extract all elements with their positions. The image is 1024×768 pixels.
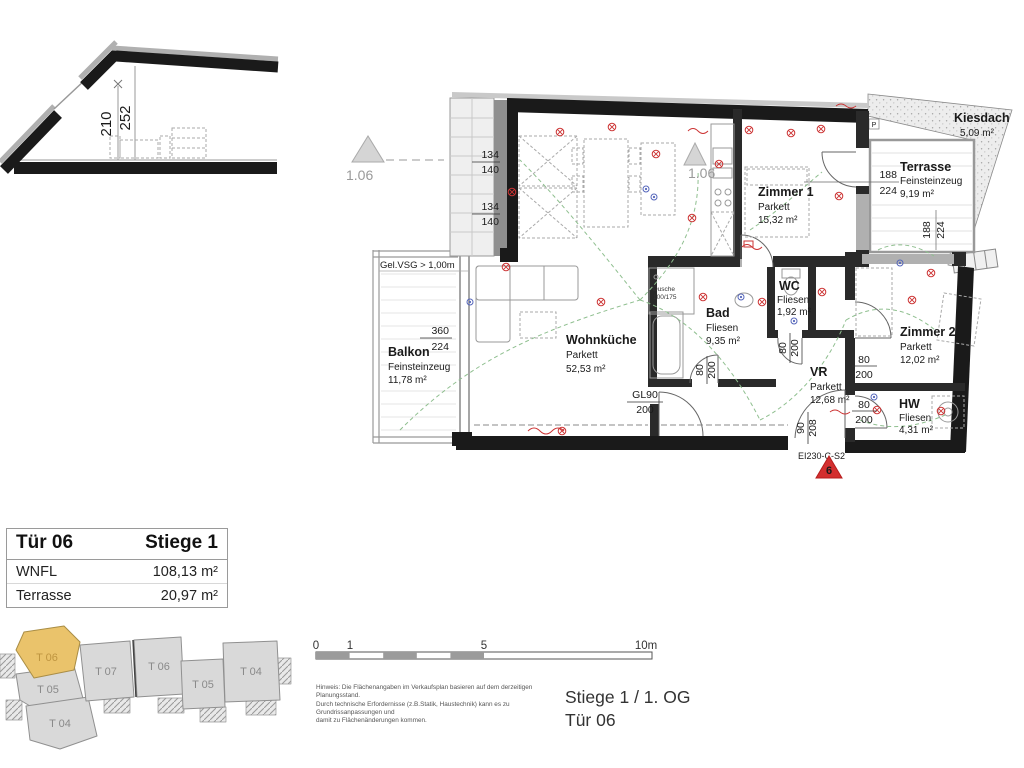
roof-section: 210 252 <box>0 42 278 174</box>
staircase-number: Stiege 1 <box>145 532 218 554</box>
svg-text:T 05: T 05 <box>192 679 214 691</box>
table-row: Terrasse 20,97 m² <box>7 584 227 607</box>
svg-text:Fliesen: Fliesen <box>706 323 738 334</box>
glass-rail-note: Gel.VSG > 1,00m <box>380 260 455 271</box>
svg-text:360: 360 <box>431 325 449 337</box>
svg-text:200: 200 <box>855 414 873 426</box>
svg-text:80: 80 <box>858 354 870 366</box>
svg-text:Feinsteinzeug: Feinsteinzeug <box>900 176 962 187</box>
svg-text:90: 90 <box>795 422 807 434</box>
svg-text:Feinsteinzeug: Feinsteinzeug <box>388 362 450 373</box>
plan-title-location: Stiege 1 / 1. OG <box>565 686 690 709</box>
svg-text:224: 224 <box>431 341 449 353</box>
p-marker: P <box>872 122 877 129</box>
svg-text:T 05: T 05 <box>37 684 59 696</box>
terrasse-label: Terrasse <box>16 588 72 604</box>
svg-text:140: 140 <box>481 164 499 176</box>
svg-text:10m: 10m <box>635 640 657 652</box>
svg-text:15,32 m²: 15,32 m² <box>758 215 798 226</box>
svg-text:5,09 m²: 5,09 m² <box>960 128 995 139</box>
svg-text:1.06: 1.06 <box>688 165 715 181</box>
svg-text:200: 200 <box>636 404 654 416</box>
svg-text:1: 1 <box>347 640 353 652</box>
svg-text:1.06: 1.06 <box>346 167 373 183</box>
section-dim-252: 252 <box>117 105 134 130</box>
info-table-header: Tür 06 Stiege 1 <box>7 529 227 560</box>
svg-text:GL90: GL90 <box>632 389 658 401</box>
room-label-kiesdach: Kiesdach <box>954 111 1010 125</box>
level-marker-a: 1.06 <box>346 136 444 183</box>
room-label-wc: WC <box>779 279 800 293</box>
svg-text:224: 224 <box>935 221 947 239</box>
terrasse-value: 20,97 m² <box>161 588 218 604</box>
svg-text:134: 134 <box>481 201 499 213</box>
svg-text:12,02 m²: 12,02 m² <box>900 355 940 366</box>
svg-text:12,68 m²: 12,68 m² <box>810 395 850 406</box>
disclaimer-note: Hinweis: Die Flächenangaben im Verkaufsp… <box>316 684 568 726</box>
svg-text:80: 80 <box>694 364 706 376</box>
fire-rating-label: EI230-C-S2 <box>798 451 845 461</box>
room-label-terrasse: Terrasse <box>900 160 951 174</box>
window-strip <box>450 98 518 262</box>
overview-map: T 06 T 05 T 04 T 07 T 06 T 05 T 04 <box>0 626 291 749</box>
svg-text:Parkett: Parkett <box>810 382 842 393</box>
svg-text:Fliesen: Fliesen <box>899 413 931 424</box>
window-zimmer1 <box>856 194 869 250</box>
scale-bar: 0 1 5 10m <box>313 640 657 659</box>
wnfl-label: WNFL <box>16 564 57 580</box>
wall-angled-east <box>950 266 974 452</box>
door-number: Tür 06 <box>16 532 73 554</box>
svg-text:T 04: T 04 <box>240 666 262 678</box>
section-dim-210: 210 <box>98 111 115 136</box>
svg-text:200: 200 <box>855 369 873 381</box>
svg-text:208: 208 <box>807 419 819 437</box>
svg-text:140: 140 <box>481 216 499 228</box>
svg-text:200: 200 <box>706 361 718 379</box>
room-label-hw: HW <box>899 397 920 411</box>
svg-text:5: 5 <box>481 640 487 652</box>
floor-plan: P Gel.VSG > 1,00m <box>346 92 1012 478</box>
section-roof-lower <box>4 114 58 170</box>
svg-text:T 06: T 06 <box>148 661 170 673</box>
svg-text:188: 188 <box>879 169 897 181</box>
table-row: WNFL 108,13 m² <box>7 560 227 584</box>
room-label-bad: Bad <box>706 306 730 320</box>
room-label-balkon: Balkon <box>388 345 430 359</box>
svg-text:224: 224 <box>879 185 897 197</box>
room-label-zimmer1: Zimmer 1 <box>758 185 814 199</box>
plan-title: Stiege 1 / 1. OG Tür 06 <box>565 686 690 732</box>
svg-text:52,53 m²: 52,53 m² <box>566 364 606 375</box>
svg-text:6: 6 <box>826 465 832 477</box>
svg-text:80: 80 <box>858 399 870 411</box>
svg-text:T 07: T 07 <box>95 666 117 678</box>
room-label-wohnkueche: Wohnküche <box>566 333 637 347</box>
balcony-glazing <box>460 252 469 444</box>
svg-text:Parkett: Parkett <box>758 202 790 213</box>
svg-text:9,35 m²: 9,35 m² <box>706 336 741 347</box>
svg-text:11,78 m²: 11,78 m² <box>388 375 427 386</box>
section-floor <box>14 162 277 174</box>
socket-icons <box>467 186 903 400</box>
svg-text:9,19 m²: 9,19 m² <box>900 189 935 200</box>
svg-text:0: 0 <box>313 640 319 652</box>
shower-label: Dusche <box>653 286 675 293</box>
plan-title-unit: Tür 06 <box>565 709 690 732</box>
section-furniture <box>110 128 206 158</box>
svg-text:T 04: T 04 <box>49 718 71 730</box>
wnfl-value: 108,13 m² <box>153 564 218 580</box>
svg-text:200: 200 <box>789 339 801 357</box>
window-zimmer2 <box>862 254 954 264</box>
svg-text:Parkett: Parkett <box>900 342 932 353</box>
svg-text:1,92 m²: 1,92 m² <box>777 307 812 318</box>
svg-text:80: 80 <box>777 342 789 354</box>
unit-info-table: Tür 06 Stiege 1 WNFL 108,13 m² Terrasse … <box>6 528 228 608</box>
room-label-zimmer2: Zimmer 2 <box>900 325 956 339</box>
section-roof-window <box>54 79 86 109</box>
room-label-vr: VR <box>810 365 827 379</box>
svg-text:Parkett: Parkett <box>566 350 598 361</box>
wall-bottom <box>456 436 788 450</box>
svg-text:T 06: T 06 <box>36 652 58 664</box>
shower-size: 100/175 <box>653 294 677 301</box>
wall-hw-bottom <box>845 440 965 453</box>
drawing-canvas: 210 252 <box>0 0 1024 768</box>
svg-text:134: 134 <box>481 149 499 161</box>
svg-text:Fliesen: Fliesen <box>777 295 809 306</box>
svg-text:188: 188 <box>921 221 933 239</box>
svg-text:4,31 m²: 4,31 m² <box>899 425 934 436</box>
